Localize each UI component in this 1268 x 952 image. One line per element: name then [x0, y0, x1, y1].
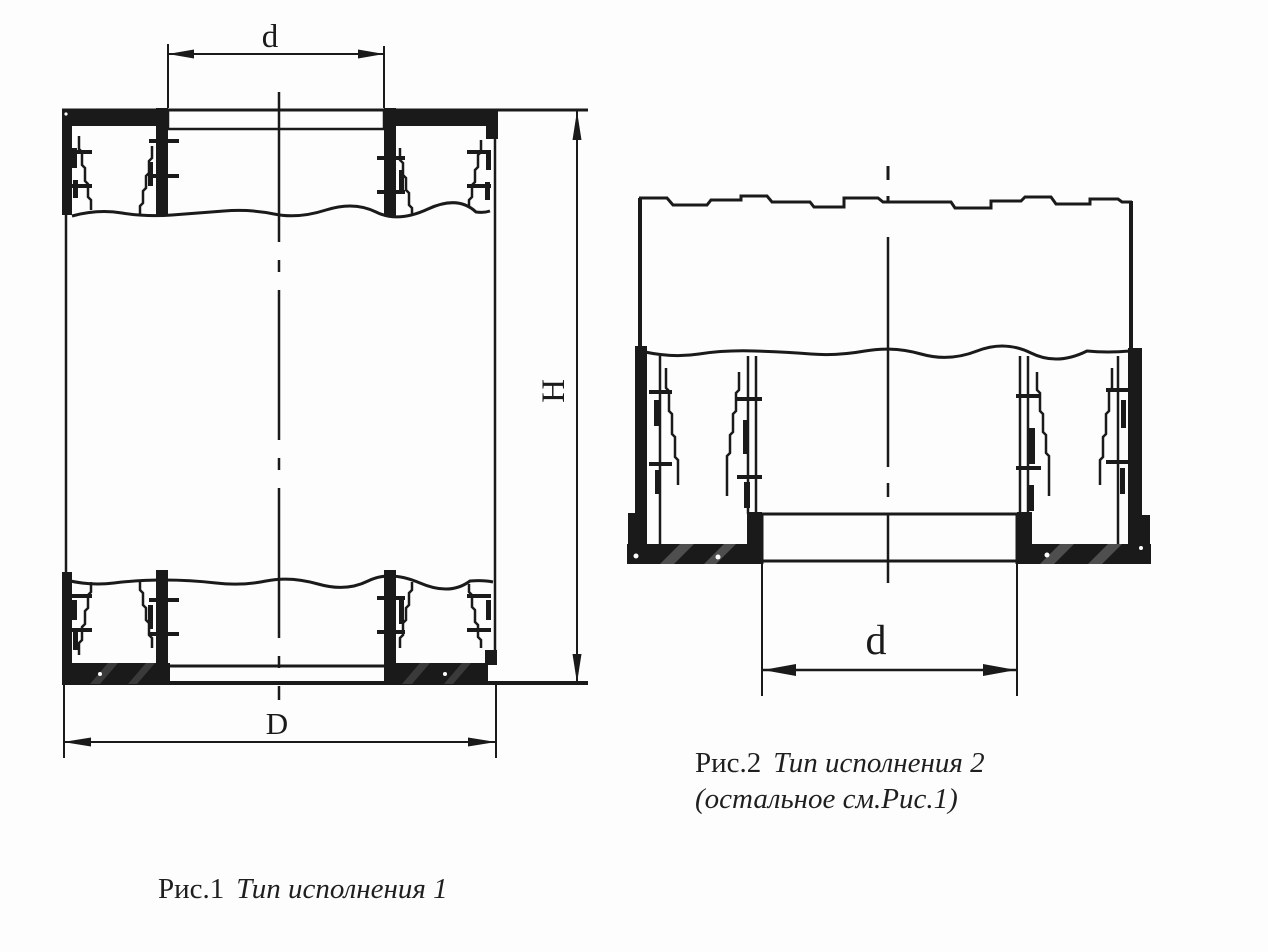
fig2-caption-line2: (остальное см.Рис.1) — [695, 783, 958, 815]
fig1-caption-title: Тип исполнения 1 — [236, 873, 447, 905]
fig1-dimension-H: H — [536, 111, 582, 683]
figure2-drawing: d — [627, 166, 1151, 696]
fig1-caption-label: Рис.1 — [158, 873, 224, 905]
fig2-caption-label: Рис.2 — [695, 747, 761, 779]
fig2-caption-title: Тип исполнения 2 — [773, 747, 984, 779]
figure1-drawing: d D H — [62, 19, 588, 758]
fig1-dimension-d: d — [168, 19, 384, 108]
fig2-dimension-d: d — [762, 564, 1017, 696]
fig2-pleats — [649, 356, 1130, 545]
drawing-canvas: d D H — [0, 0, 1268, 952]
fig2-dim-d-label: d — [866, 618, 887, 664]
fig1-caption: Рис.1Тип исполнения 1 — [158, 873, 448, 905]
captions: Рис.1Тип исполнения 1 Рис.2Тип исполнени… — [158, 747, 985, 905]
fig2-caption-line1: Рис.2Тип исполнения 2 — [695, 747, 985, 779]
fig1-dim-D-label: D — [266, 706, 288, 741]
fig1-dim-H-label: H — [536, 379, 572, 403]
fig1-body-outline — [62, 110, 588, 683]
technical-drawing-page: d D H — [0, 0, 1268, 952]
fig1-dim-d-label: d — [262, 19, 279, 55]
